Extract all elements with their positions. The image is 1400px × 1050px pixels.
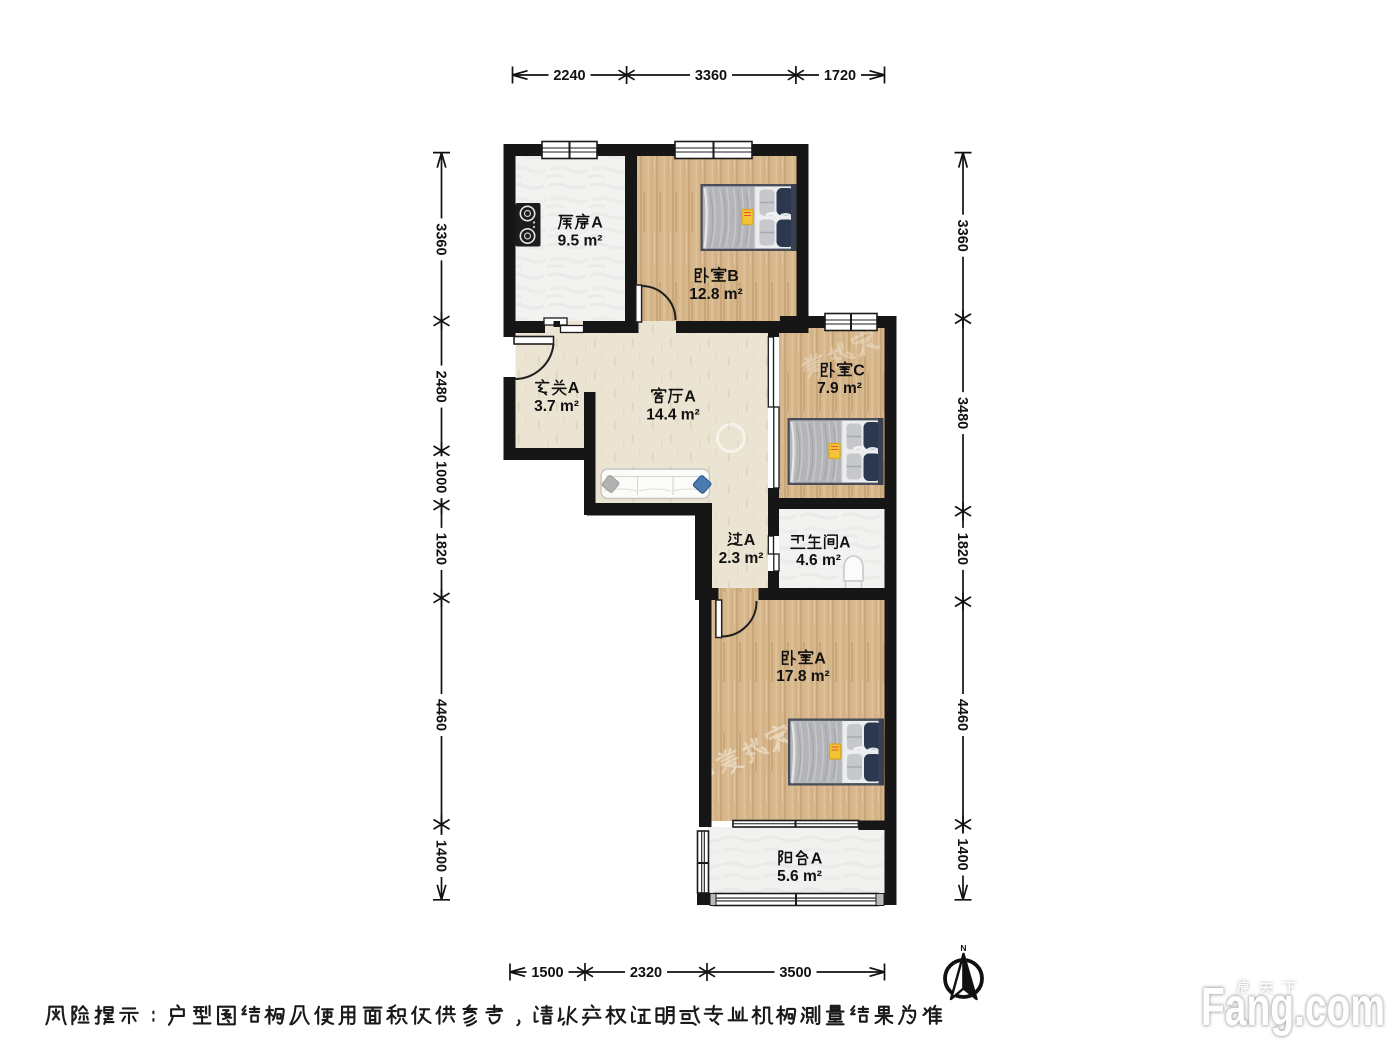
svg-text:4.6 m²: 4.6 m² — [796, 552, 841, 569]
svg-text:1720: 1720 — [824, 68, 856, 84]
svg-text:14.4 m²: 14.4 m² — [646, 406, 699, 423]
svg-text:1500: 1500 — [531, 965, 563, 981]
svg-text:A: A — [568, 380, 580, 397]
svg-text:3360: 3360 — [954, 220, 970, 252]
svg-text:1820: 1820 — [432, 533, 448, 565]
svg-text:A: A — [591, 215, 603, 232]
svg-text:2240: 2240 — [553, 68, 585, 84]
svg-text:9.5 m²: 9.5 m² — [558, 232, 603, 249]
svg-text:1400: 1400 — [954, 838, 970, 870]
svg-text:Fang.com: Fang.com — [1201, 977, 1385, 1037]
svg-text:3360: 3360 — [695, 68, 727, 84]
svg-text:5.6 m²: 5.6 m² — [777, 868, 822, 885]
svg-text:2320: 2320 — [630, 965, 662, 981]
svg-text:1400: 1400 — [432, 840, 448, 872]
svg-text:3480: 3480 — [954, 397, 970, 429]
svg-text:3500: 3500 — [779, 965, 811, 981]
svg-text:N: N — [960, 943, 966, 953]
svg-text:B: B — [727, 268, 739, 285]
svg-text:4460: 4460 — [432, 699, 448, 731]
svg-text:A: A — [814, 651, 826, 668]
svg-text:3.7 m²: 3.7 m² — [534, 398, 579, 415]
svg-text:A: A — [744, 532, 756, 549]
svg-text:1000: 1000 — [432, 461, 448, 493]
svg-text:A: A — [684, 389, 696, 406]
svg-text:A: A — [811, 851, 823, 868]
svg-text:12.8 m²: 12.8 m² — [689, 286, 742, 303]
svg-text:4460: 4460 — [954, 699, 970, 731]
svg-text:3360: 3360 — [432, 223, 448, 255]
svg-text:C: C — [853, 363, 865, 380]
svg-text:2.3 m²: 2.3 m² — [719, 550, 764, 567]
svg-text:1820: 1820 — [954, 533, 970, 565]
svg-text:A: A — [839, 535, 850, 552]
svg-text:2480: 2480 — [432, 370, 448, 402]
svg-text:7.9 m²: 7.9 m² — [817, 380, 862, 397]
svg-text:17.8 m²: 17.8 m² — [776, 668, 829, 685]
